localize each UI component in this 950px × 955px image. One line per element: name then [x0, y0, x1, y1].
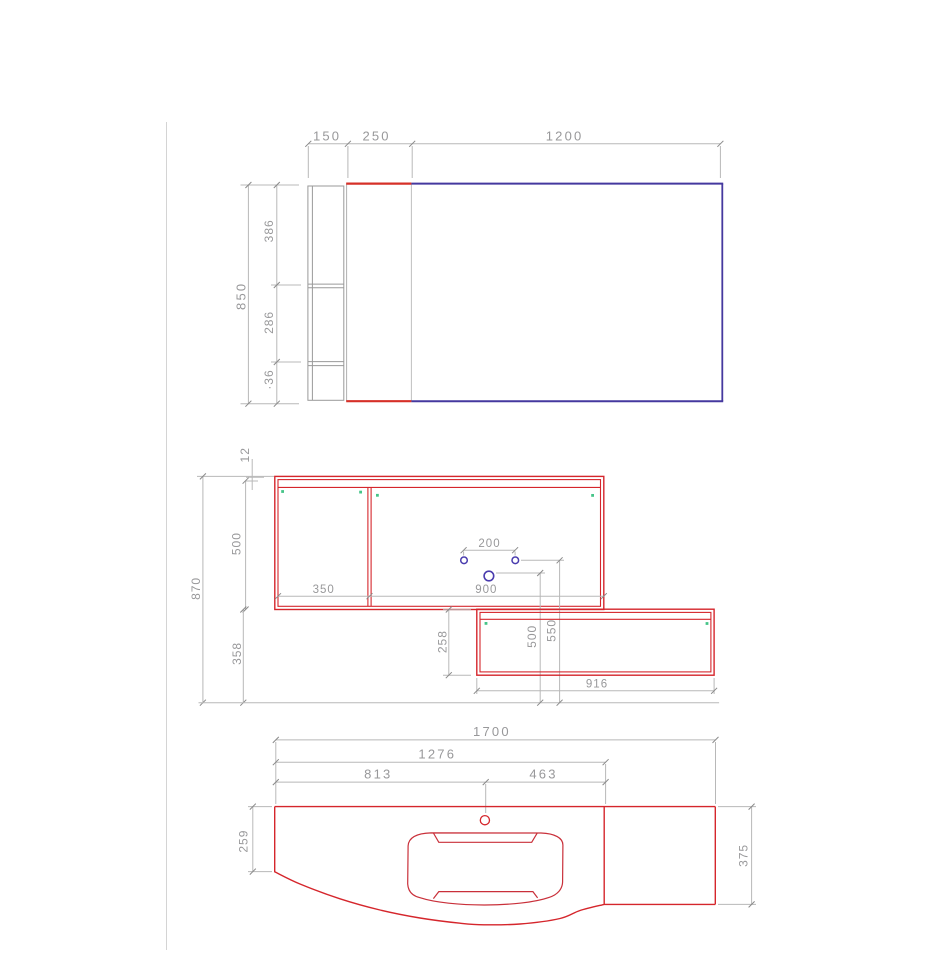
- svg-text:463: 463: [529, 766, 557, 781]
- svg-text:350: 350: [313, 584, 335, 596]
- svg-text:258: 258: [435, 630, 449, 653]
- svg-text:870: 870: [189, 577, 203, 600]
- svg-text:358: 358: [230, 642, 244, 665]
- svg-text:200: 200: [478, 538, 500, 550]
- svg-text:150: 150: [313, 129, 341, 144]
- svg-text:916: 916: [586, 678, 608, 690]
- svg-text:250: 250: [362, 129, 390, 144]
- svg-text:259: 259: [237, 830, 251, 853]
- svg-text:·36: ·36: [262, 369, 276, 389]
- svg-text:900: 900: [475, 584, 497, 596]
- svg-text:12: 12: [238, 447, 252, 462]
- svg-text:386: 386: [262, 219, 276, 242]
- svg-text:1700: 1700: [473, 724, 511, 739]
- svg-text:850: 850: [233, 282, 248, 310]
- svg-text:500: 500: [525, 625, 539, 648]
- svg-text:286: 286: [262, 311, 276, 334]
- svg-text:550: 550: [545, 619, 559, 642]
- svg-text:500: 500: [229, 532, 243, 555]
- svg-text:1200: 1200: [546, 129, 584, 144]
- svg-text:375: 375: [737, 844, 751, 867]
- svg-text:1276: 1276: [418, 746, 456, 761]
- svg-text:813: 813: [364, 766, 392, 781]
